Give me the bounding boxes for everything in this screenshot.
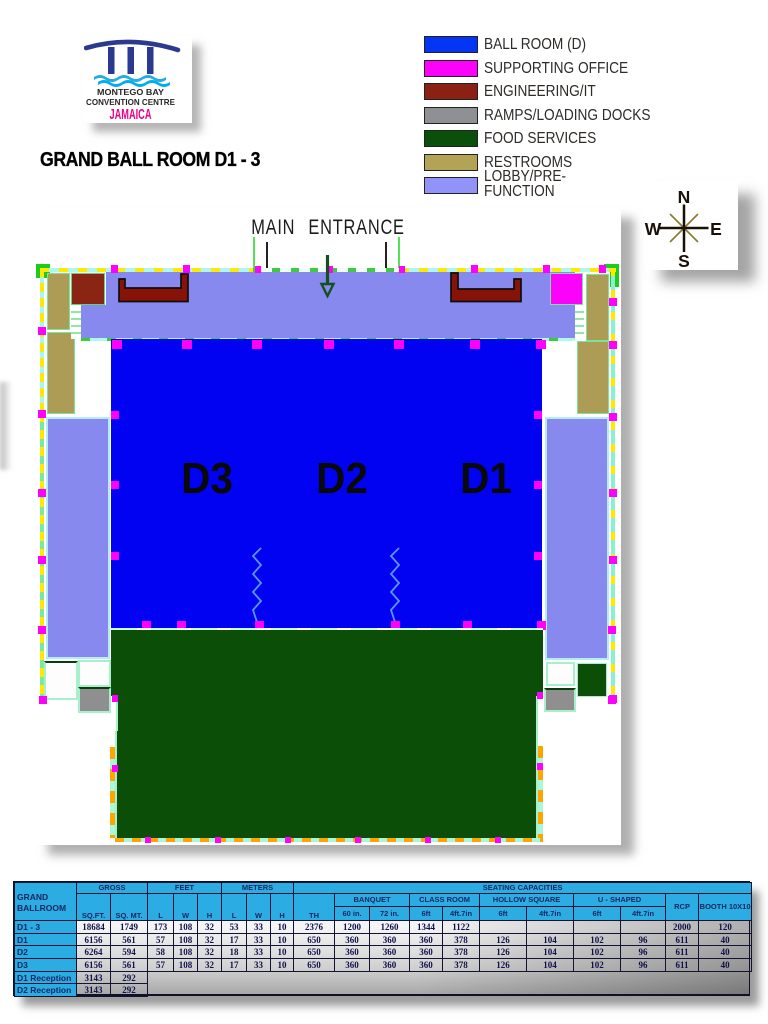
svg-text:N: N bbox=[678, 187, 691, 207]
svg-text:W: W bbox=[645, 219, 662, 239]
svg-text:E: E bbox=[710, 219, 722, 239]
svg-text:S: S bbox=[678, 251, 690, 270]
